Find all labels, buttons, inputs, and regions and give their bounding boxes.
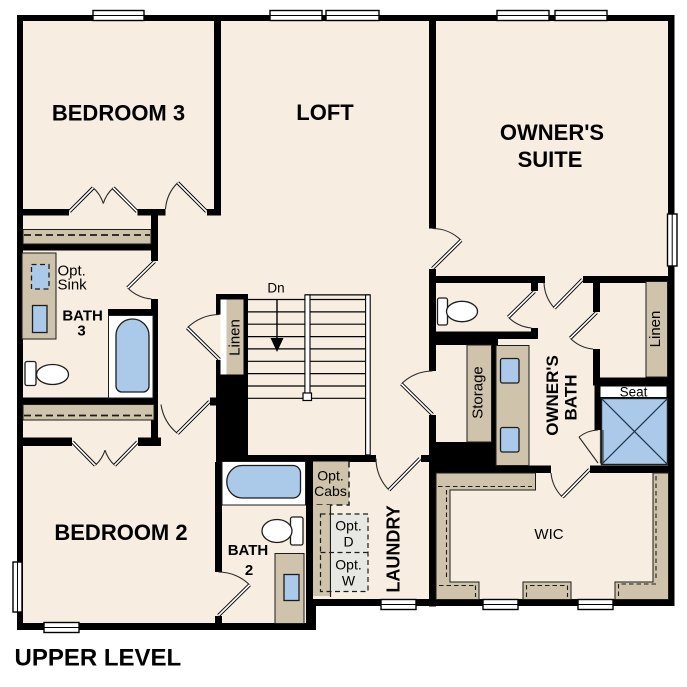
svg-text:Seat: Seat: [620, 385, 648, 400]
svg-text:Opt.: Opt.: [335, 557, 361, 573]
svg-text:BATH: BATH: [228, 542, 269, 559]
svg-text:Sink: Sink: [58, 277, 88, 294]
svg-text:W: W: [342, 573, 356, 589]
svg-text:Cabs: Cabs: [314, 483, 347, 499]
svg-text:Dn: Dn: [267, 281, 284, 296]
svg-text:LOFT: LOFT: [296, 100, 354, 125]
svg-text:BATH: BATH: [562, 375, 581, 421]
svg-text:D: D: [343, 534, 353, 550]
svg-text:UPPER LEVEL: UPPER LEVEL: [15, 645, 182, 672]
svg-text:3: 3: [77, 323, 85, 340]
svg-text:Storage: Storage: [470, 366, 487, 419]
svg-text:LAUNDRY: LAUNDRY: [384, 505, 404, 592]
svg-text:WIC: WIC: [534, 526, 563, 543]
svg-text:2: 2: [245, 562, 253, 579]
svg-text:OWNER'S: OWNER'S: [500, 120, 604, 145]
svg-text:Linen: Linen: [647, 311, 664, 348]
svg-text:Opt.: Opt.: [335, 518, 361, 534]
svg-text:OWNER'S: OWNER'S: [543, 355, 562, 436]
svg-text:SUITE: SUITE: [518, 147, 583, 172]
svg-text:BEDROOM 2: BEDROOM 2: [54, 520, 187, 545]
svg-text:Linen: Linen: [227, 319, 244, 356]
svg-text:BEDROOM 3: BEDROOM 3: [52, 101, 185, 126]
svg-text:Opt.: Opt.: [317, 468, 343, 484]
